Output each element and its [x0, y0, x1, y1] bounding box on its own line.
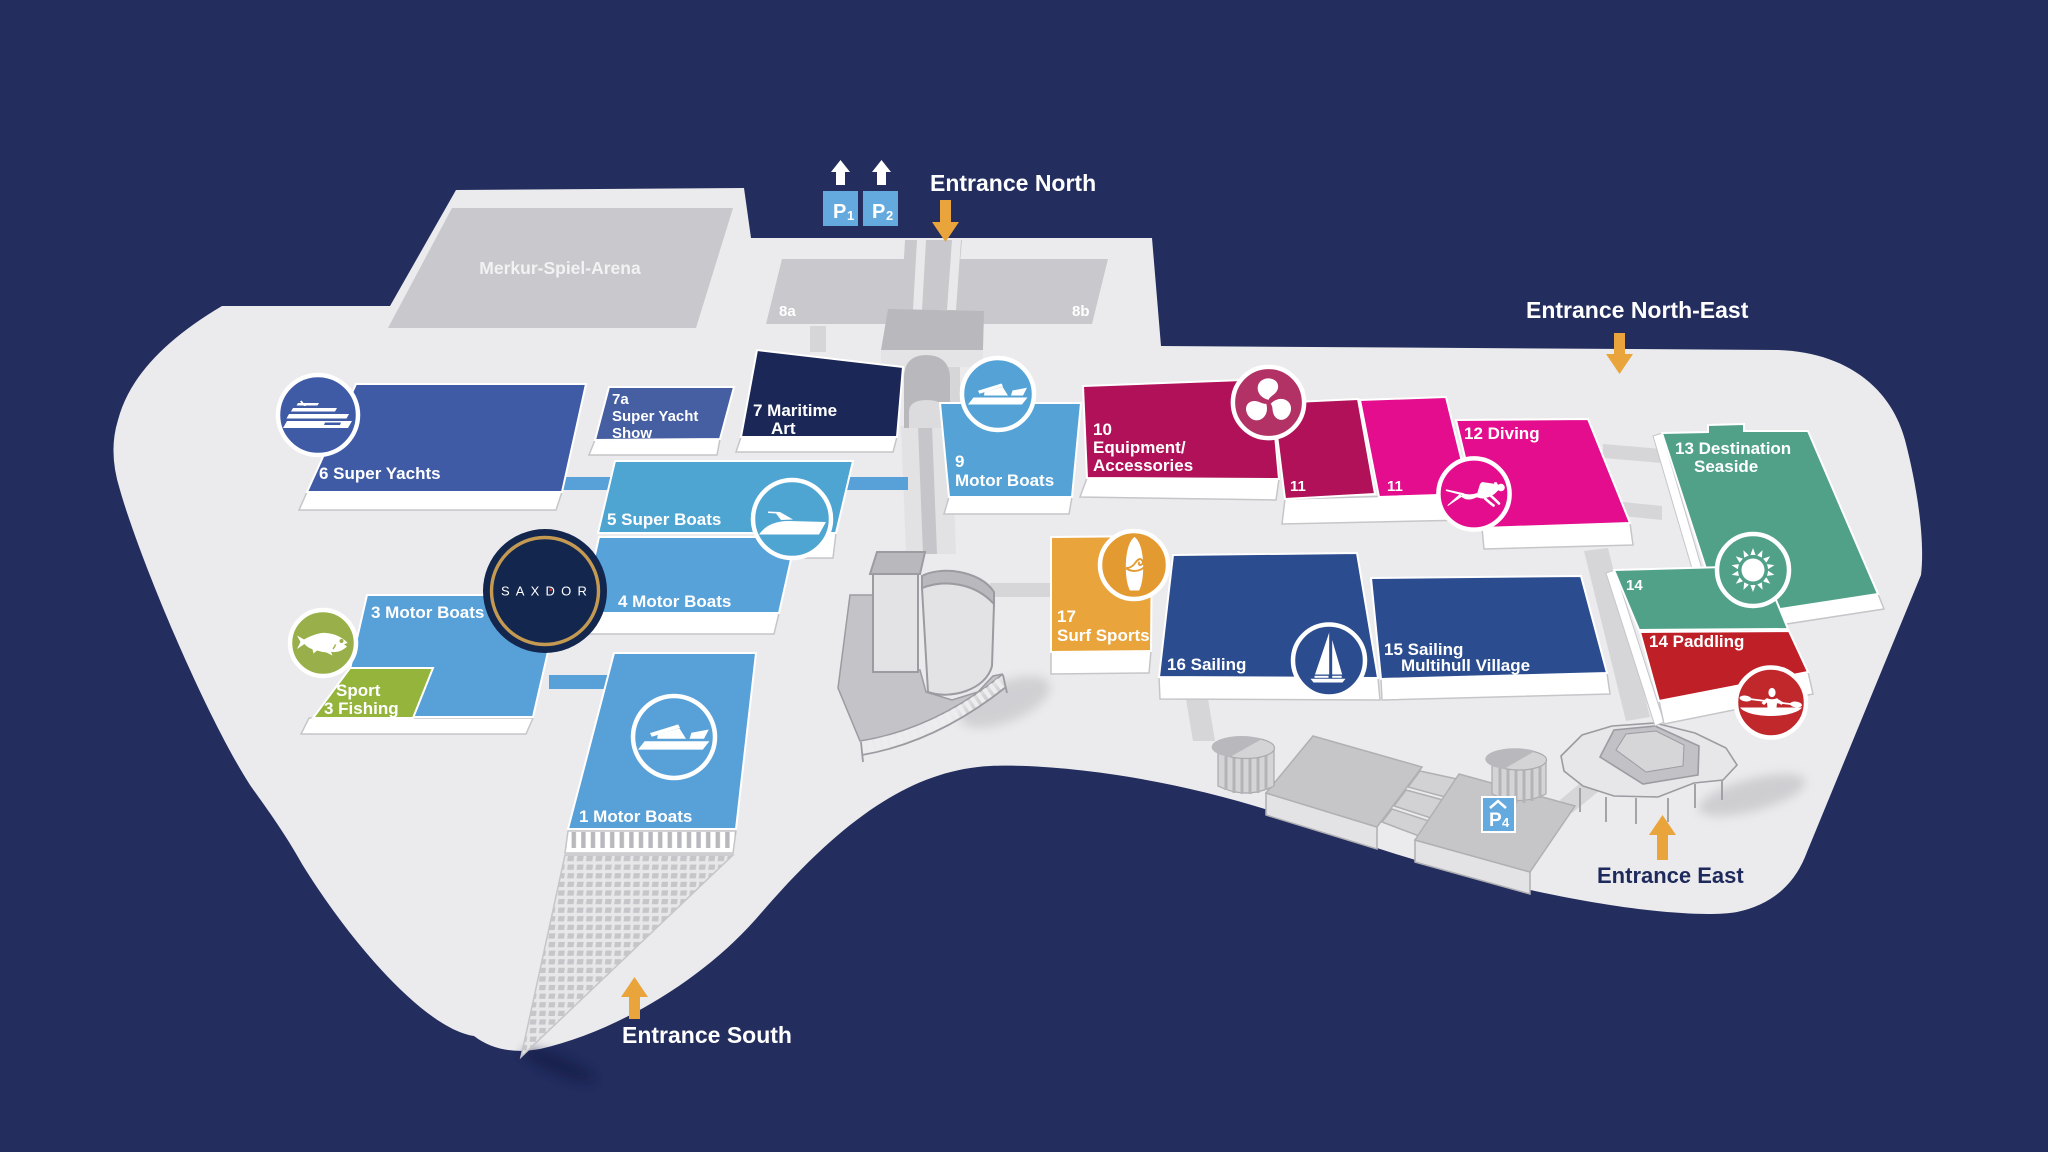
svg-text:P: P [1489, 810, 1502, 831]
svg-text:Accessories: Accessories [1093, 456, 1193, 475]
svg-text:3 Motor Boats: 3 Motor Boats [371, 603, 484, 622]
svg-text:Show: Show [612, 425, 652, 442]
svg-text:7 Maritime: 7 Maritime [753, 401, 837, 420]
svg-text:Entrance South: Entrance South [622, 1022, 792, 1048]
svg-text:SAXDOR: SAXDOR [501, 584, 593, 599]
svg-text:Merkur-Spiel-Arena: Merkur-Spiel-Arena [479, 258, 641, 278]
svg-text:6 Super Yachts: 6 Super Yachts [319, 464, 441, 483]
svg-text:Entrance North-East: Entrance North-East [1526, 297, 1749, 323]
svg-text:3 Fishing: 3 Fishing [324, 699, 399, 718]
svg-text:Motor Boats: Motor Boats [955, 471, 1054, 490]
svg-text:Surf Sports: Surf Sports [1057, 626, 1150, 645]
svg-text:1 Motor Boats: 1 Motor Boats [579, 807, 692, 826]
svg-text:Entrance East: Entrance East [1597, 863, 1744, 888]
svg-text:7a: 7a [612, 391, 629, 408]
svg-text:Super Yacht: Super Yacht [612, 408, 698, 425]
svg-text:4: 4 [1502, 815, 1510, 830]
svg-text:P: P [872, 201, 885, 223]
svg-text:17: 17 [1057, 607, 1076, 626]
svg-text:1: 1 [847, 208, 854, 223]
svg-text:8a: 8a [779, 303, 796, 320]
svg-text:Art: Art [771, 419, 796, 438]
svg-text:5 Super Boats: 5 Super Boats [607, 510, 721, 529]
svg-text:16 Sailing: 16 Sailing [1167, 655, 1246, 674]
svg-text:8b: 8b [1072, 303, 1090, 320]
svg-text:12 Diving: 12 Diving [1464, 424, 1540, 443]
svg-text:2: 2 [886, 208, 893, 223]
svg-text:11: 11 [1290, 478, 1306, 495]
svg-text:4 Motor Boats: 4 Motor Boats [618, 592, 731, 611]
svg-text:9: 9 [955, 452, 964, 471]
svg-text:Equipment/: Equipment/ [1093, 438, 1186, 457]
svg-text:Sport: Sport [336, 681, 381, 700]
svg-text:Seaside: Seaside [1694, 457, 1758, 476]
svg-text:P: P [833, 201, 846, 223]
svg-text:14: 14 [1626, 577, 1643, 594]
svg-text:13 Destination: 13 Destination [1675, 439, 1791, 458]
svg-text:11: 11 [1387, 478, 1403, 495]
svg-text:14 Paddling: 14 Paddling [1649, 632, 1744, 651]
svg-text:10: 10 [1093, 420, 1112, 439]
svg-text:Entrance North: Entrance North [930, 170, 1096, 196]
svg-text:Multihull Village: Multihull Village [1401, 656, 1530, 675]
